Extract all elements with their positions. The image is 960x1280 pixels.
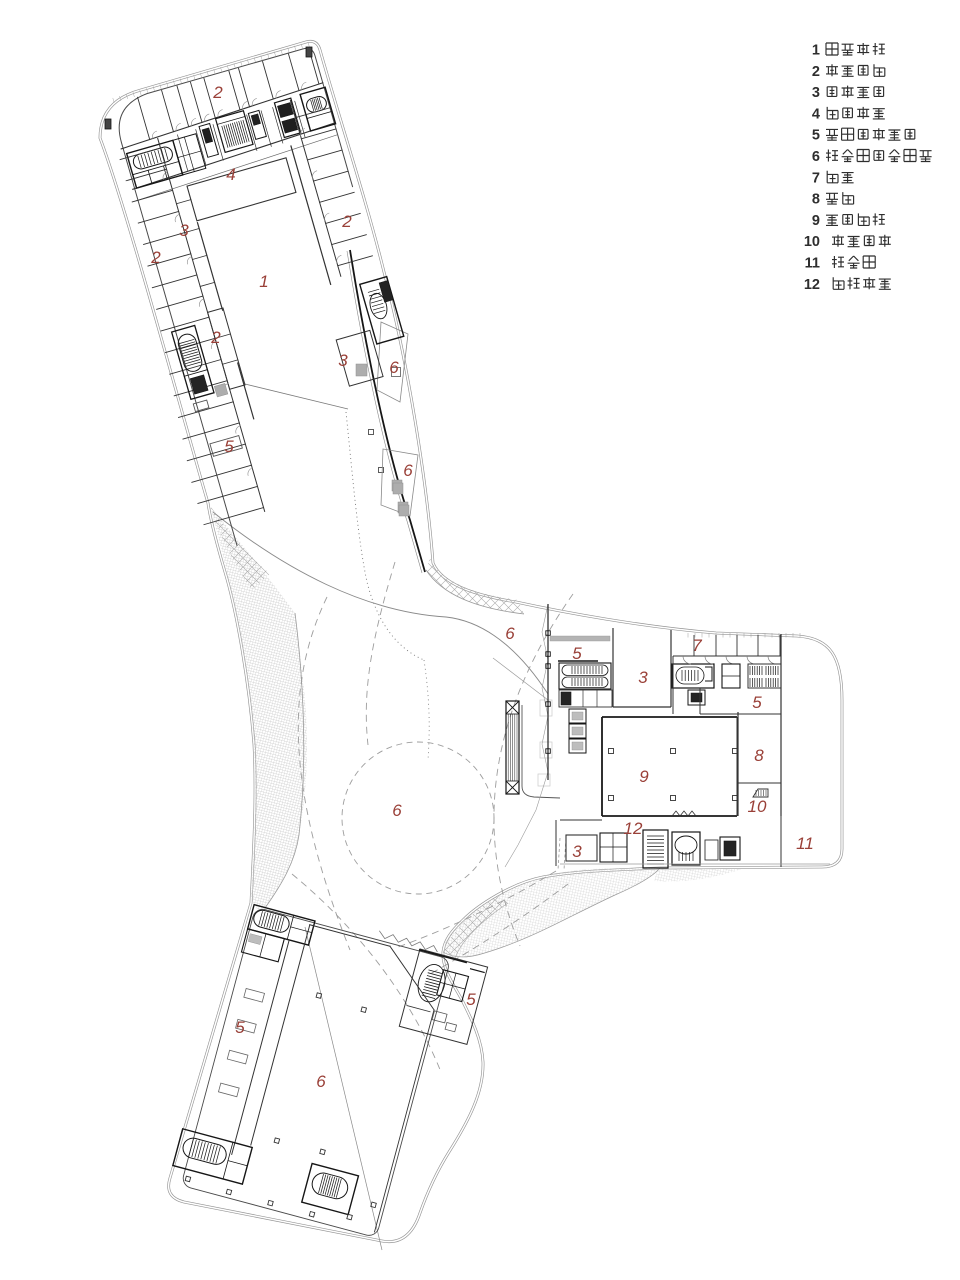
svg-text:4: 4: [812, 106, 820, 122]
svg-text:5: 5: [224, 437, 234, 456]
svg-text:5: 5: [752, 693, 762, 712]
svg-text:3: 3: [812, 85, 820, 101]
svg-text:6: 6: [505, 624, 515, 643]
svg-text:11: 11: [796, 834, 814, 853]
svg-text:9: 9: [639, 767, 649, 786]
svg-text:7: 7: [812, 170, 820, 186]
svg-text:2: 2: [812, 64, 820, 80]
svg-text:3: 3: [638, 668, 648, 687]
svg-text:12: 12: [804, 277, 820, 293]
svg-text:5: 5: [466, 990, 476, 1009]
svg-text:1: 1: [259, 272, 268, 291]
svg-text:3: 3: [338, 351, 348, 370]
svg-text:5: 5: [812, 128, 820, 144]
svg-text:2: 2: [150, 248, 161, 267]
svg-text:6: 6: [812, 149, 820, 165]
svg-text:1: 1: [812, 43, 820, 59]
svg-text:6: 6: [403, 461, 413, 480]
svg-text:3: 3: [179, 221, 189, 240]
svg-text:6: 6: [392, 801, 402, 820]
svg-text:2: 2: [341, 212, 352, 231]
svg-text:10: 10: [748, 797, 767, 816]
svg-text:6: 6: [389, 358, 399, 377]
svg-text:8: 8: [812, 192, 820, 208]
svg-text:5: 5: [235, 1018, 245, 1037]
svg-text:6: 6: [316, 1072, 326, 1091]
svg-text:2: 2: [210, 328, 221, 347]
svg-text:9: 9: [812, 213, 820, 229]
svg-text:10: 10: [804, 234, 820, 250]
svg-text:5: 5: [572, 644, 582, 663]
svg-text:2: 2: [212, 83, 223, 102]
svg-text:12: 12: [624, 819, 643, 838]
svg-text:8: 8: [754, 746, 764, 765]
svg-text:4: 4: [226, 165, 235, 184]
svg-text:11: 11: [805, 256, 820, 272]
svg-text:7: 7: [692, 636, 702, 655]
svg-text:3: 3: [572, 842, 582, 861]
